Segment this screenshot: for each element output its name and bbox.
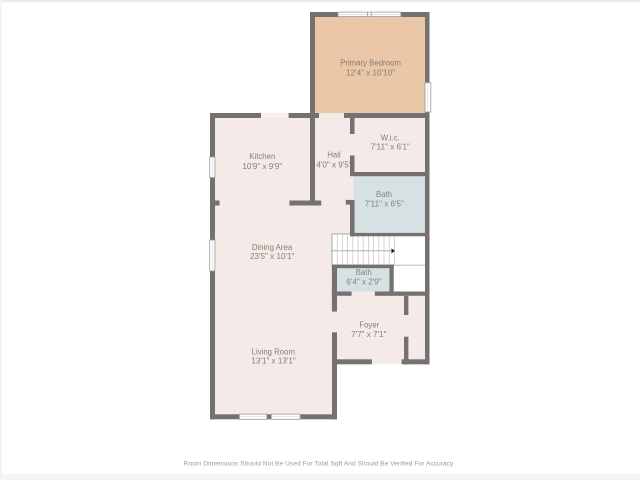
svg-text:W.i.c.: W.i.c. <box>381 134 400 143</box>
svg-text:Living Room: Living Room <box>252 348 295 357</box>
svg-text:10'9" x 9'9": 10'9" x 9'9" <box>242 162 282 171</box>
svg-text:23'5" x 10'1": 23'5" x 10'1" <box>250 252 295 261</box>
svg-text:7'7" x 7'1": 7'7" x 7'1" <box>351 330 387 339</box>
svg-text:Bath: Bath <box>356 268 372 277</box>
svg-text:7'11" x 6'1": 7'11" x 6'1" <box>371 143 410 152</box>
svg-text:4'0" x 9'5": 4'0" x 9'5" <box>316 161 352 170</box>
svg-text:Primary Bedroom: Primary Bedroom <box>340 59 401 68</box>
svg-text:6'4" x 2'9": 6'4" x 2'9" <box>346 277 382 286</box>
svg-text:13'1" x 13'1": 13'1" x 13'1" <box>251 357 296 366</box>
svg-text:7'11" x 6'5": 7'11" x 6'5" <box>365 200 404 209</box>
svg-text:12'4" x 10'10": 12'4" x 10'10" <box>346 69 395 78</box>
svg-text:Foyer: Foyer <box>359 321 379 330</box>
svg-text:Kitchen: Kitchen <box>249 152 275 161</box>
svg-text:Hall: Hall <box>327 151 341 160</box>
svg-text:Dining Area: Dining Area <box>252 243 293 252</box>
svg-text:Room Dimensions Should Not Be: Room Dimensions Should Not Be Used For T… <box>184 461 454 468</box>
svg-text:Bath: Bath <box>376 190 392 199</box>
